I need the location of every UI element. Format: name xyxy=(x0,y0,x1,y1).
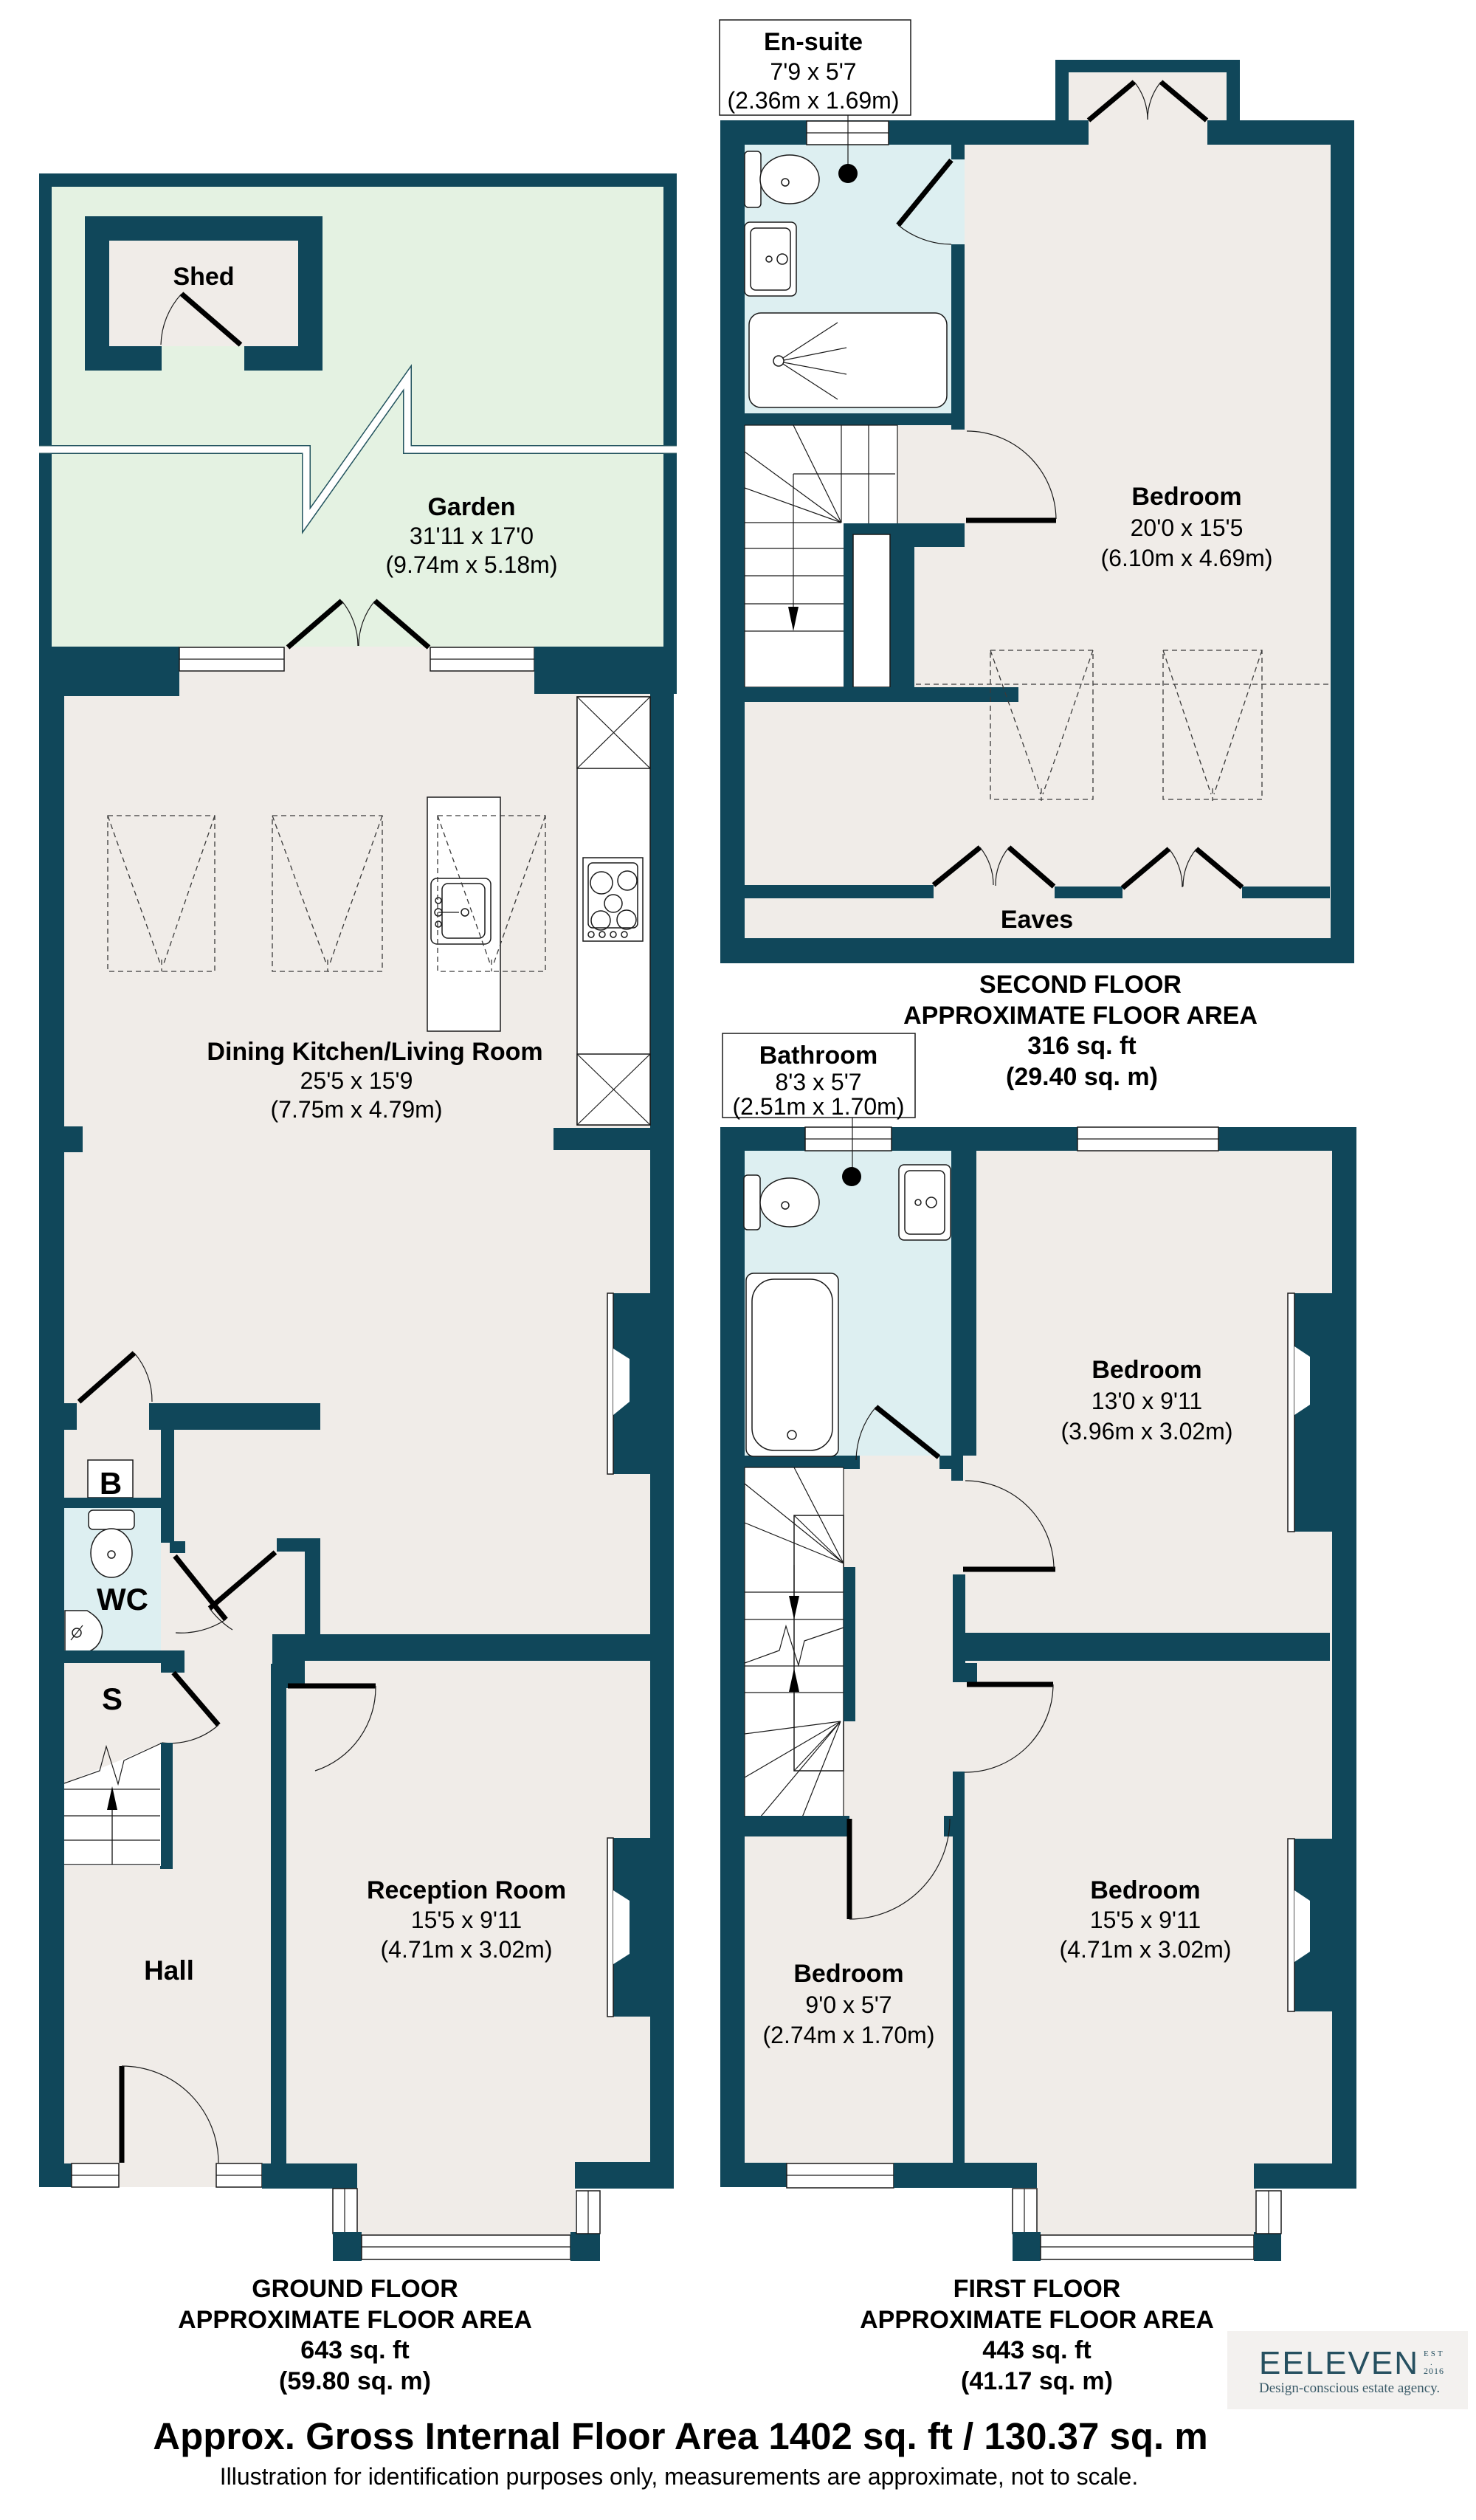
svg-text:(2.74m x 1.70m): (2.74m x 1.70m) xyxy=(763,2022,935,2048)
svg-text:Bedroom: Bedroom xyxy=(793,1960,903,1988)
svg-text:(29.40 sq. m): (29.40 sq. m) xyxy=(1006,1063,1158,1091)
svg-text:(41.17 sq. m): (41.17 sq. m) xyxy=(961,2367,1113,2395)
svg-text:Bedroom: Bedroom xyxy=(1131,483,1241,511)
svg-text:(59.80 sq. m): (59.80 sq. m) xyxy=(279,2367,431,2395)
svg-text:(2.51m x 1.70m): (2.51m x 1.70m) xyxy=(733,1093,905,1120)
svg-text:15'5 x 9'11: 15'5 x 9'11 xyxy=(1090,1907,1201,1933)
svg-text:GROUND FLOOR: GROUND FLOOR xyxy=(252,2275,458,2303)
svg-text:(4.71m x 3.02m): (4.71m x 3.02m) xyxy=(1060,1936,1232,1963)
svg-text:(9.74m x 5.18m): (9.74m x 5.18m) xyxy=(386,551,558,578)
svg-text:APPROXIMATE FLOOR AREA: APPROXIMATE FLOOR AREA xyxy=(178,2306,532,2334)
svg-text:20'0 x 15'5: 20'0 x 15'5 xyxy=(1131,514,1244,541)
svg-text:Illustration for identificatio: Illustration for identification purposes… xyxy=(220,2463,1138,2490)
svg-text:(3.96m x 3.02m): (3.96m x 3.02m) xyxy=(1061,1418,1233,1445)
svg-text:316 sq. ft: 316 sq. ft xyxy=(1027,1032,1136,1060)
svg-text:Garden: Garden xyxy=(427,493,515,521)
svg-text:7'9 x 5'7: 7'9 x 5'7 xyxy=(770,58,856,85)
svg-text:(6.10m x 4.69m): (6.10m x 4.69m) xyxy=(1101,545,1273,571)
svg-text:9'0 x 5'7: 9'0 x 5'7 xyxy=(805,1991,892,2018)
svg-text:APPROXIMATE FLOOR AREA: APPROXIMATE FLOOR AREA xyxy=(860,2306,1214,2334)
svg-text:Approx. Gross Internal Floor A: Approx. Gross Internal Floor Area 1402 s… xyxy=(153,2415,1207,2457)
svg-text:WC: WC xyxy=(97,1582,148,1617)
svg-text:En-suite: En-suite xyxy=(764,28,863,56)
svg-text:EELEVEN: EELEVEN xyxy=(1259,2345,1419,2381)
svg-text:Reception Room: Reception Room xyxy=(367,1876,566,1904)
svg-text:(7.75m x 4.79m): (7.75m x 4.79m) xyxy=(271,1096,443,1123)
svg-text:S: S xyxy=(102,1681,123,1716)
svg-text:FIRST FLOOR: FIRST FLOOR xyxy=(953,2275,1121,2303)
svg-text:EST: EST xyxy=(1424,2349,1445,2358)
svg-text:443 sq. ft: 443 sq. ft xyxy=(982,2336,1091,2364)
svg-text:Bedroom: Bedroom xyxy=(1090,1876,1200,1904)
svg-text:31'11 x 17'0: 31'11 x 17'0 xyxy=(410,523,534,549)
svg-text:25'5 x 15'9: 25'5 x 15'9 xyxy=(300,1067,413,1094)
svg-text:2016: 2016 xyxy=(1424,2366,1444,2376)
svg-text:(4.71m x 3.02m): (4.71m x 3.02m) xyxy=(381,1936,553,1963)
svg-text:Bathroom: Bathroom xyxy=(759,1042,878,1070)
svg-text:Bedroom: Bedroom xyxy=(1092,1356,1201,1384)
svg-text:15'5 x 9'11: 15'5 x 9'11 xyxy=(411,1907,522,1933)
svg-text:SECOND FLOOR: SECOND FLOOR xyxy=(979,971,1182,999)
svg-text:B: B xyxy=(100,1466,122,1501)
svg-text:Design-conscious estate agency: Design-conscious estate agency. xyxy=(1259,2380,1440,2396)
svg-text:8'3 x 5'7: 8'3 x 5'7 xyxy=(775,1069,861,1095)
svg-text:Eaves: Eaves xyxy=(1001,906,1073,934)
svg-text:Shed: Shed xyxy=(173,263,234,291)
svg-text:(2.36m x 1.69m): (2.36m x 1.69m) xyxy=(728,87,900,114)
svg-text:643 sq. ft: 643 sq. ft xyxy=(300,2336,409,2364)
svg-text:13'0 x 9'11: 13'0 x 9'11 xyxy=(1092,1388,1202,1414)
svg-text:Dining Kitchen/Living Room: Dining Kitchen/Living Room xyxy=(207,1038,542,1066)
svg-text:Hall: Hall xyxy=(144,1955,194,1986)
svg-text:APPROXIMATE FLOOR AREA: APPROXIMATE FLOOR AREA xyxy=(903,1002,1258,1030)
